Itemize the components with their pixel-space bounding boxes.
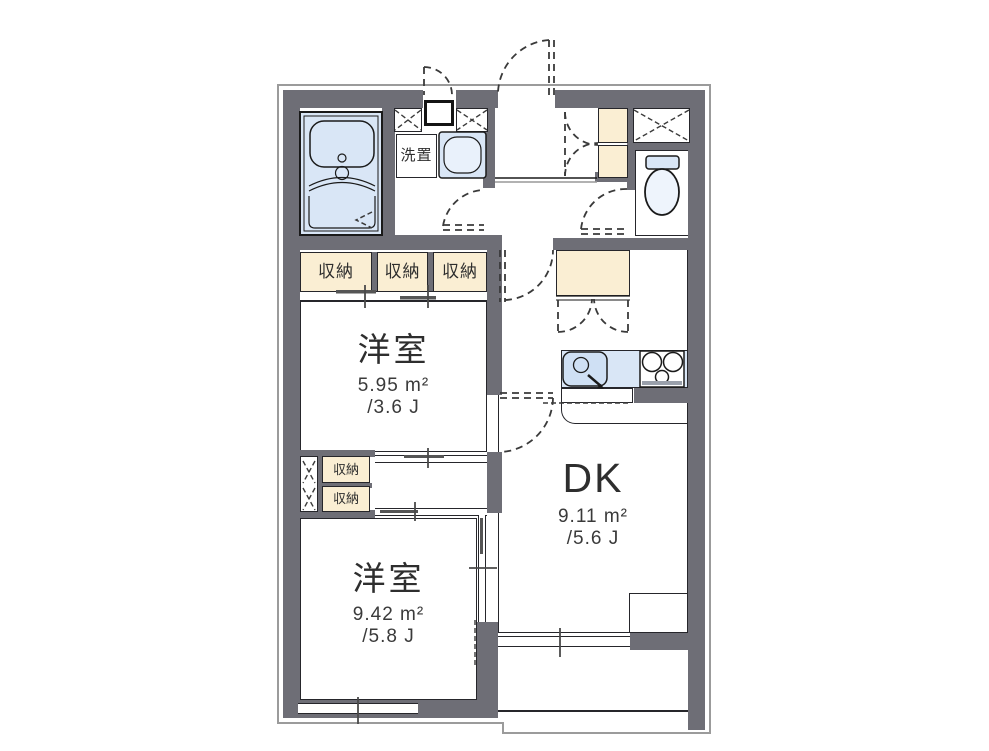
closet-label: 収納 [322,492,370,505]
wall-segment [283,90,423,108]
wall-segment [630,633,688,650]
wall-segment [688,90,705,730]
plan-outline-shadow [709,84,711,734]
kitchen-counter [561,350,688,388]
room-name: DK [498,458,688,499]
room-area-m2: 5.95 m² [300,375,487,397]
sliding-door-dk-bedroom [478,515,486,622]
floor-plan: 洗置 [0,0,989,751]
room-name: 洋室 [300,562,477,595]
shoe-cabinet-door-swing [565,143,598,176]
wall-segment [634,388,688,404]
window-bedroom-lower [298,703,418,714]
room-area-m2: 9.11 m² [498,506,688,528]
bathroom-fixture [300,112,382,235]
room-label-dk: DK 9.11 m² /5.6 J [498,458,688,550]
wall-segment [627,143,635,190]
balcony [498,650,688,712]
washer-space: 洗置 [396,134,437,178]
entry-window-box [424,100,454,126]
toilet-door-swing [581,189,627,229]
vent-box-right [456,108,488,132]
plan-outline-shadow [277,722,504,724]
room-area-jo: /5.6 J [498,528,688,550]
plan-outline-shadow [502,722,504,734]
room-area-m2: 9.42 m² [300,604,477,626]
room-area-jo: /5.8 J [300,626,477,648]
closet-label: 収納 [377,263,428,280]
kitchen-counter-front [561,403,688,424]
shoe-cabinet-door-swing [565,112,598,145]
sliding-door-track-closet-row [300,291,487,301]
dk-corner-step [629,593,688,633]
vent-box-left [394,108,422,132]
toilet-door-leaf [581,229,626,234]
room-label-bedroom-upper: 洋室 5.95 m² /3.6 J [300,333,487,419]
sliding-partition-lower [375,508,487,516]
wall-segment [627,143,690,150]
wall-segment [283,90,300,718]
window-dk [498,636,630,647]
shoe-cabinet-upper [598,108,628,143]
wall-segment [300,235,502,250]
wall-segment [483,633,498,650]
plan-outline-shadow [277,84,279,724]
dk-storage [556,250,630,296]
wall-segment [555,90,705,108]
shoe-cabinet-lower [598,145,628,178]
room-dk [498,250,688,633]
plan-outline-shadow [277,84,711,86]
closet-label: 収納 [322,463,370,476]
sliding-partition-upper [375,455,487,463]
room-name: 洋室 [300,333,487,366]
room-label-bedroom-lower: 洋室 9.42 m² /5.8 J [300,562,477,648]
cabinet-overhead-box [633,108,690,143]
pipe-space [300,456,318,512]
closet-label: 収納 [300,263,372,280]
plan-outline-shadow [502,732,711,734]
closet-label: 収納 [433,263,487,280]
wall-segment [487,250,502,395]
wall-segment [456,90,498,108]
room-area-jo: /3.6 J [300,397,487,419]
room-toilet [635,150,690,236]
wall-segment [553,238,690,250]
window-swing [424,67,452,95]
entrance-door-leaf [549,40,554,95]
kitchen-under-counter [561,388,633,403]
